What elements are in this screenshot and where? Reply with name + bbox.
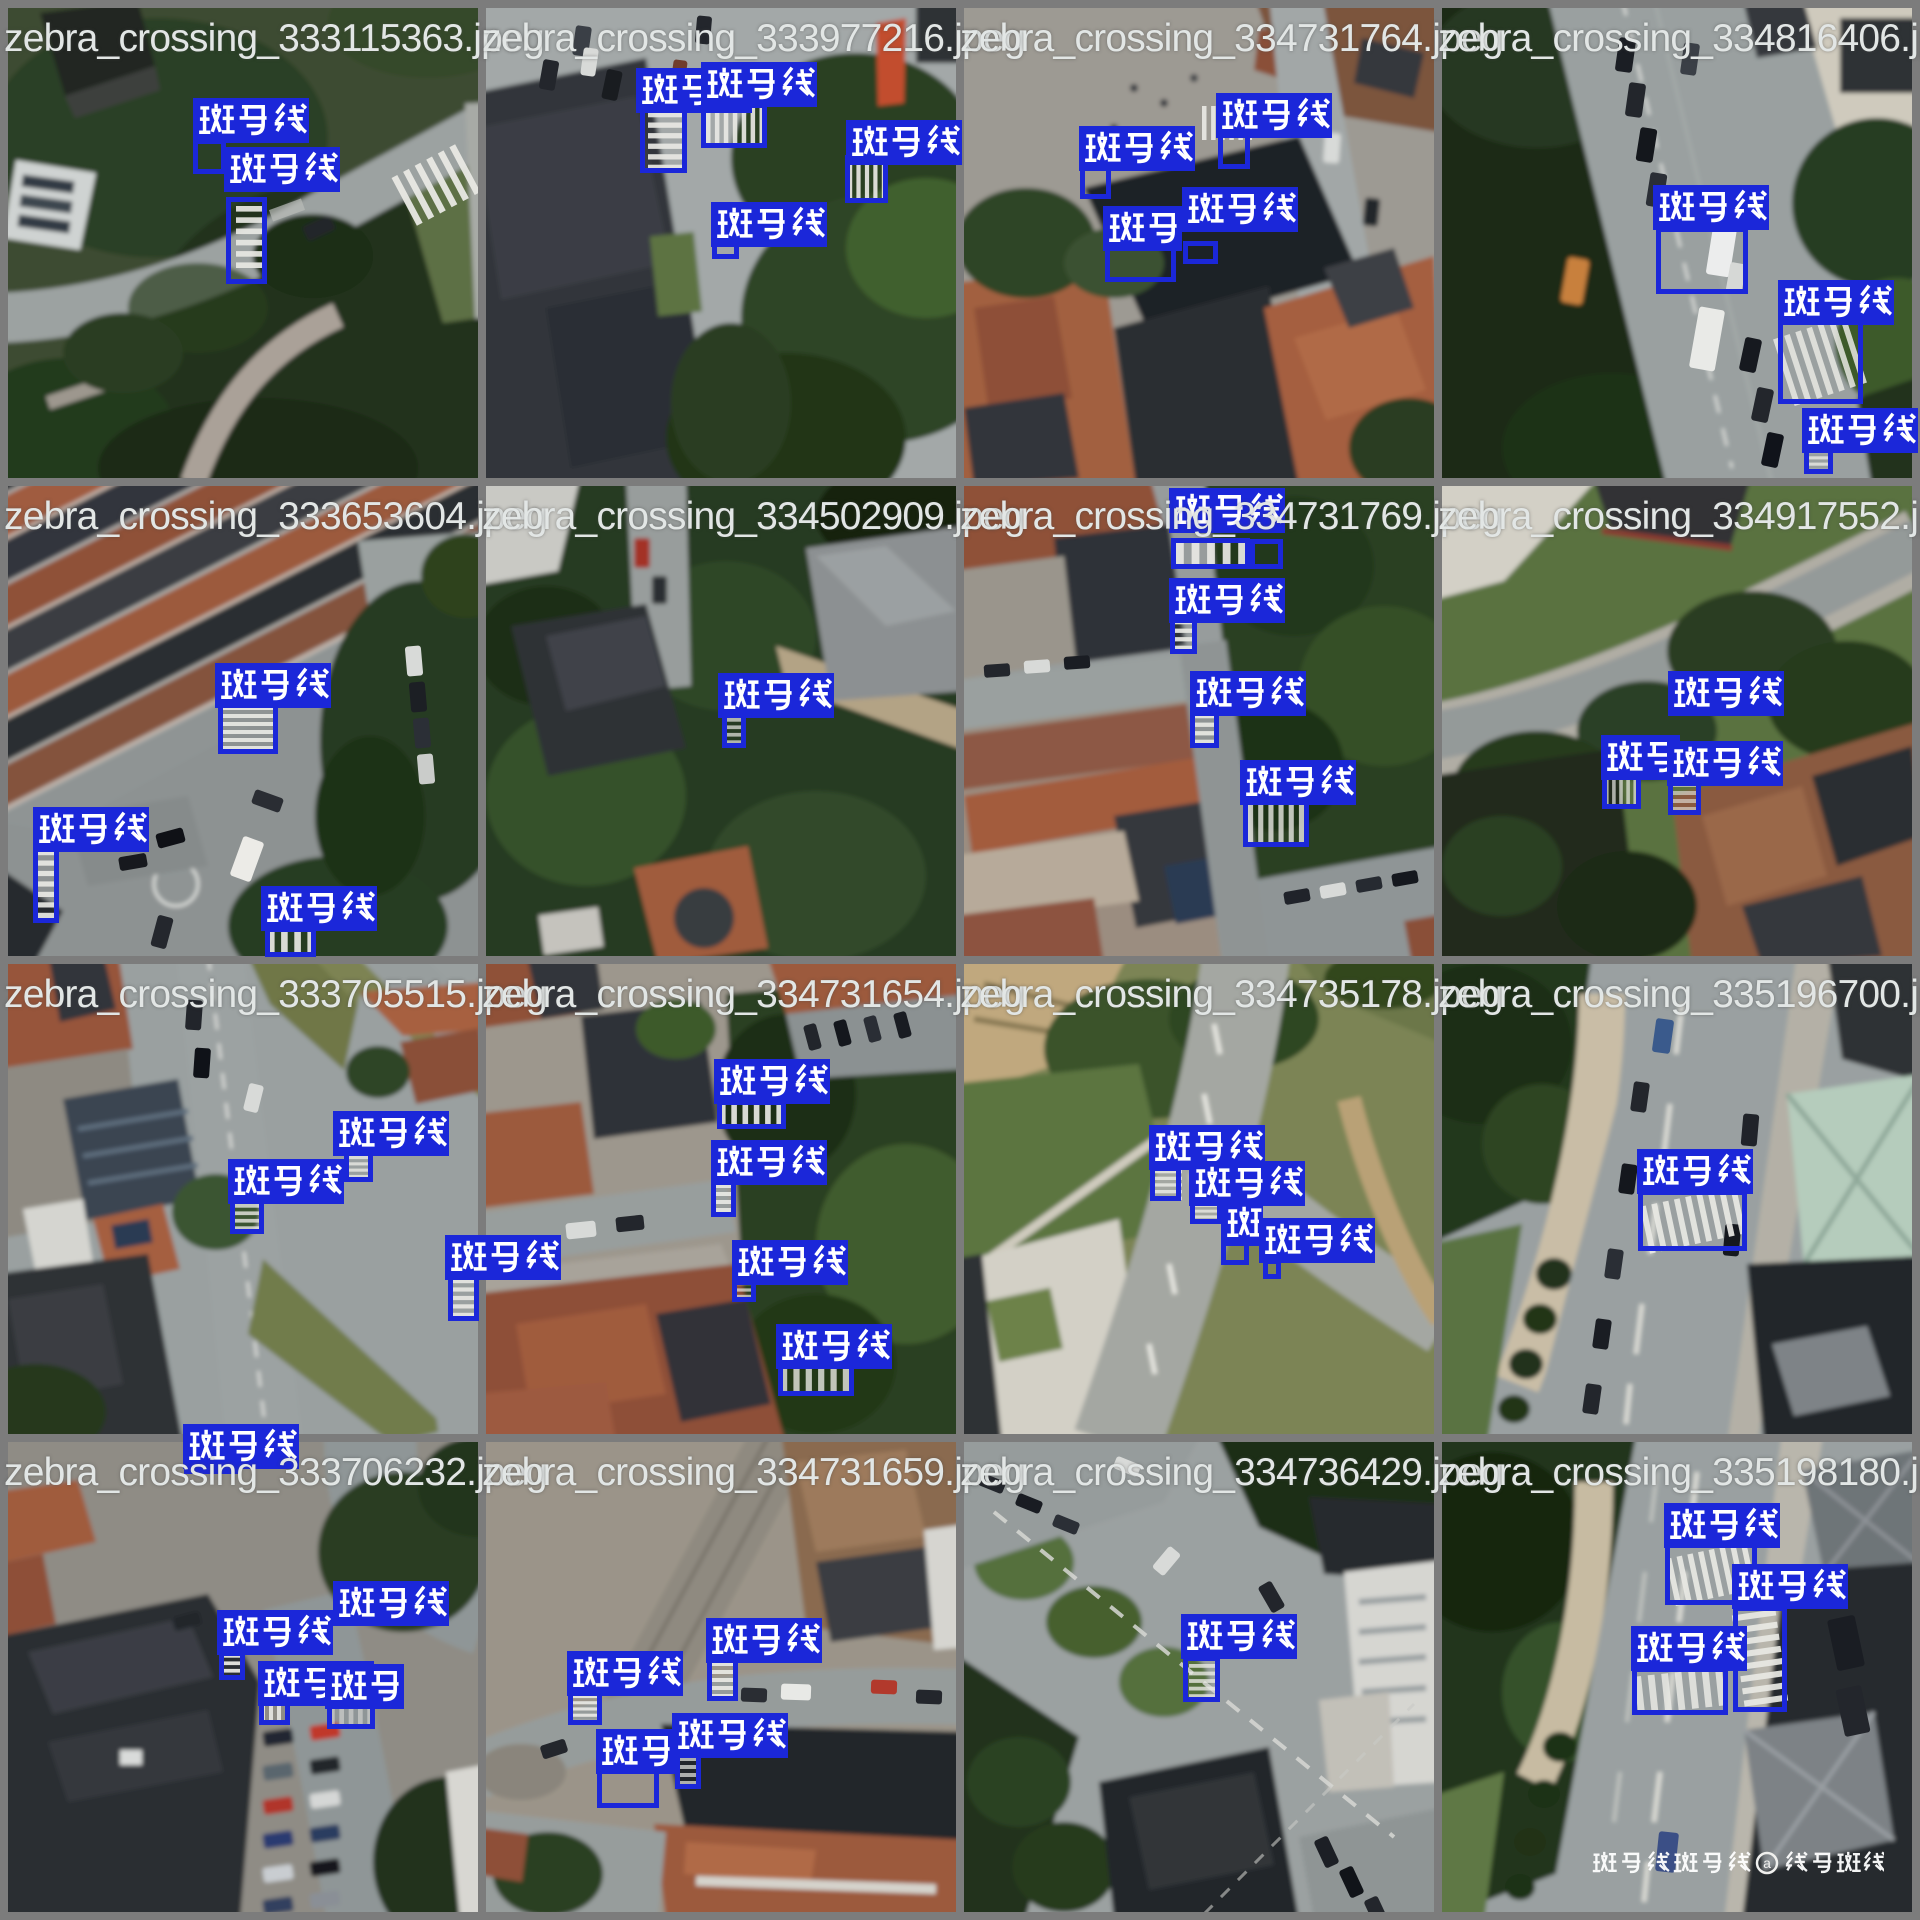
svg-text:a: a: [1763, 1855, 1771, 1871]
